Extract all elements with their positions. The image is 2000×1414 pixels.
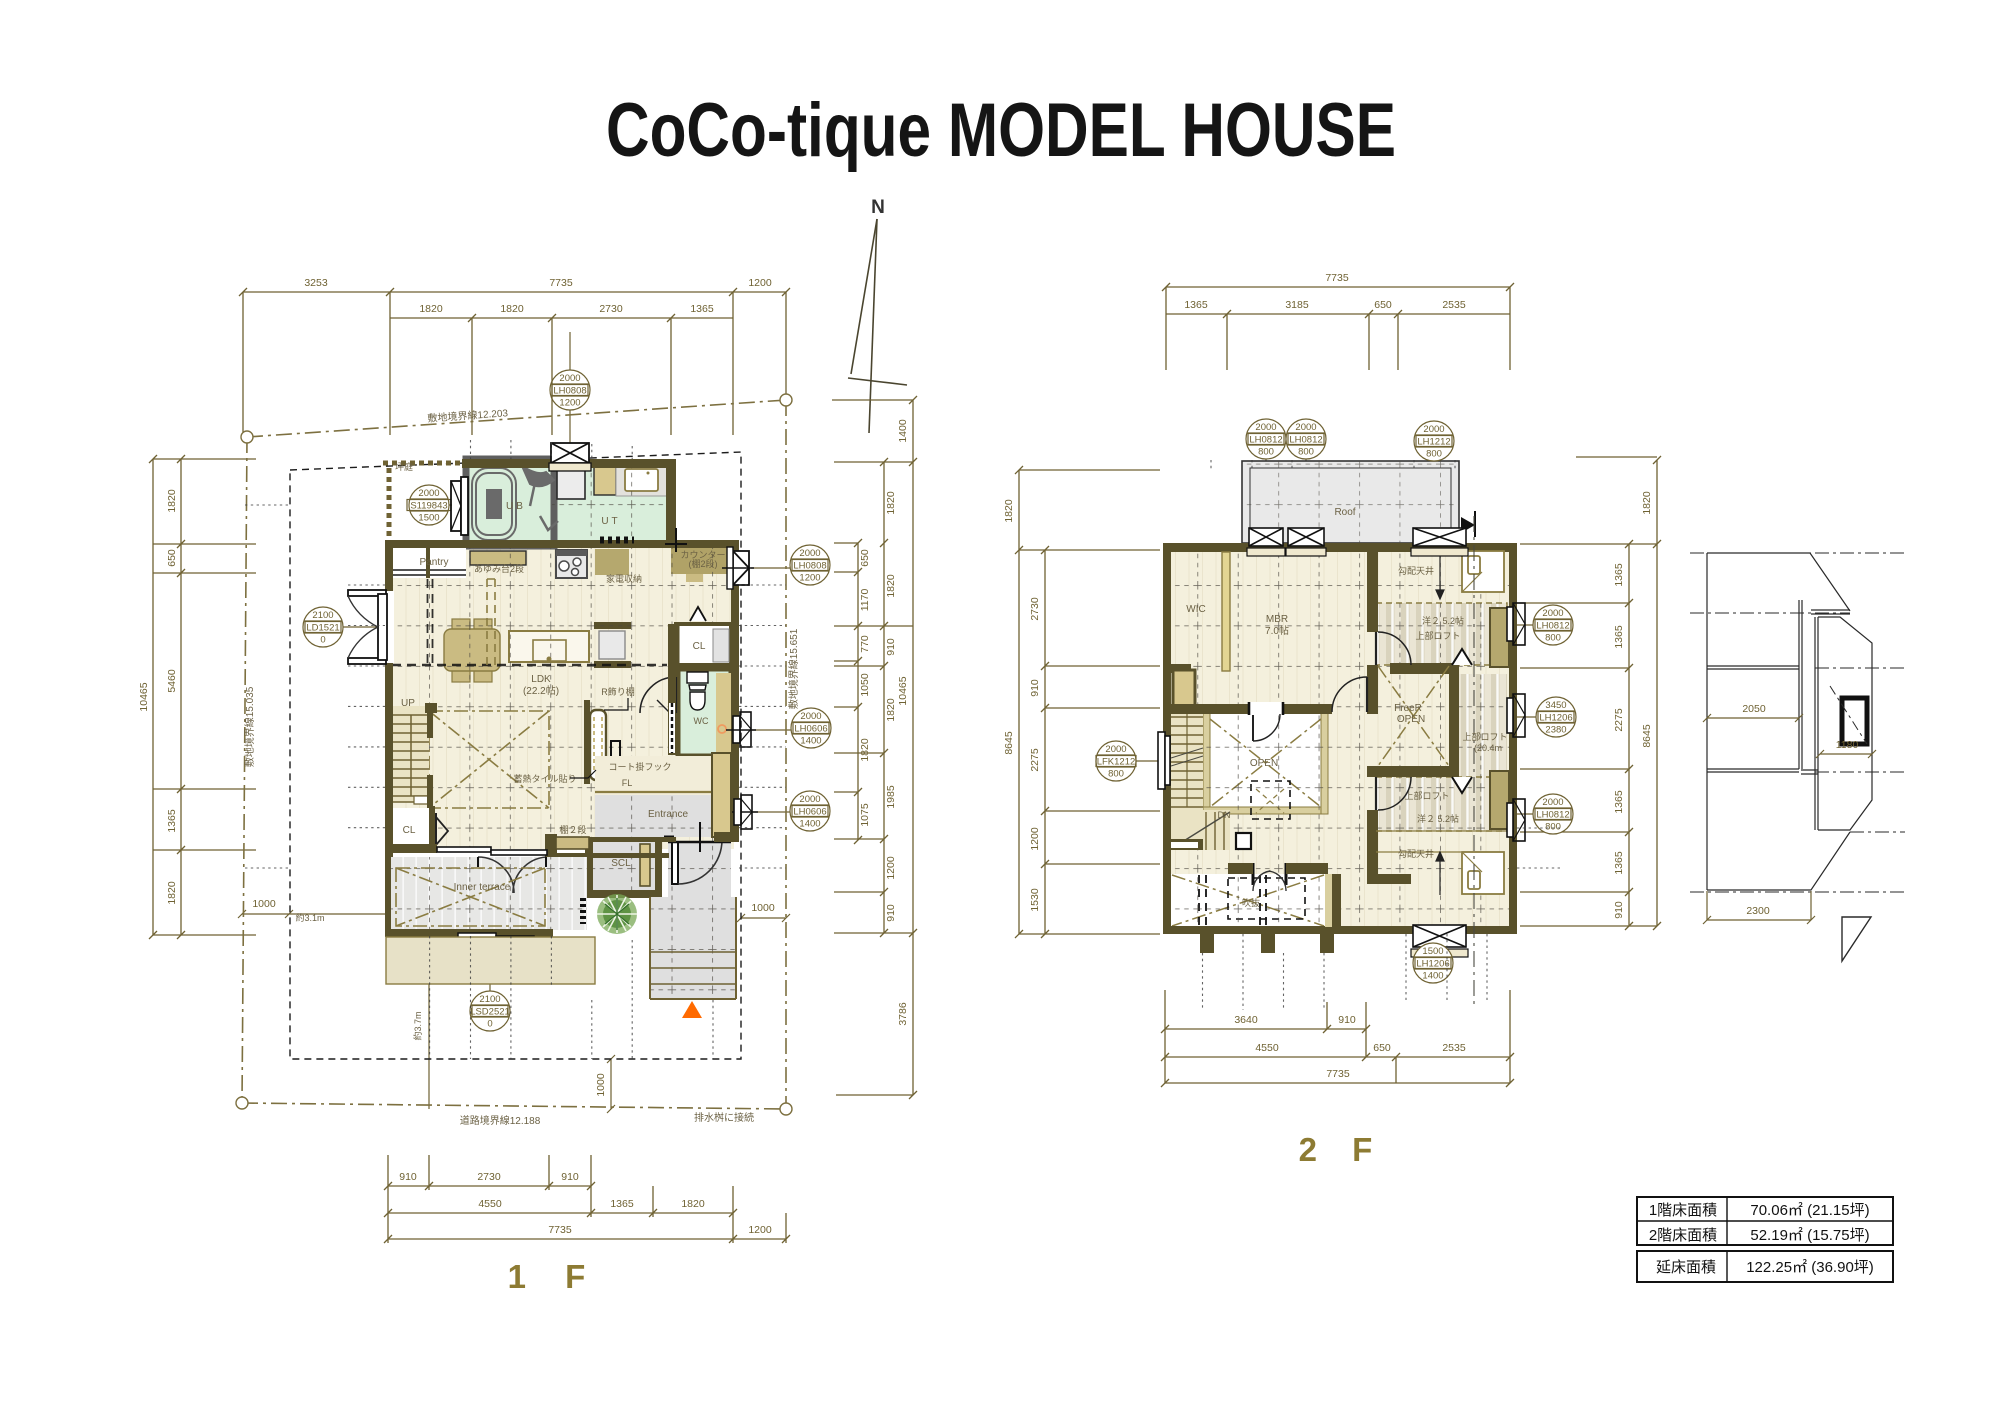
svg-text:LH0808: LH0808 [553, 386, 586, 397]
svg-text:1200: 1200 [799, 573, 820, 584]
svg-text:UT: UT [601, 516, 620, 527]
svg-text:延床面積: 延床面積 [1656, 1259, 1716, 1276]
svg-text:0: 0 [487, 1019, 492, 1030]
svg-text:2100: 2100 [312, 610, 333, 621]
svg-text:650: 650 [1374, 299, 1392, 311]
svg-text:2000: 2000 [1295, 422, 1316, 433]
svg-text:OPEN: OPEN [1397, 714, 1425, 725]
svg-text:MBR: MBR [1266, 614, 1288, 625]
svg-text:LH1212: LH1212 [1417, 437, 1450, 448]
svg-text:3253: 3253 [304, 277, 328, 289]
svg-text:1365: 1365 [166, 809, 178, 833]
svg-text:7735: 7735 [1326, 1068, 1350, 1080]
svg-text:約3.7m: 約3.7m [412, 1011, 423, 1040]
svg-text:LH0812: LH0812 [1249, 435, 1282, 446]
svg-text:勾配天井: 勾配天井 [1398, 565, 1434, 576]
svg-text:Pantry: Pantry [420, 557, 449, 568]
svg-text:2730: 2730 [1029, 597, 1041, 621]
svg-text:1820: 1820 [166, 881, 178, 905]
svg-text:1050: 1050 [859, 673, 871, 697]
svg-text:8645: 8645 [1641, 724, 1653, 748]
svg-text:1500: 1500 [1422, 946, 1443, 957]
svg-text:1 F: 1 F [508, 1258, 601, 1295]
svg-text:1365: 1365 [1613, 790, 1625, 814]
svg-text:2000: 2000 [418, 488, 439, 499]
svg-text:800: 800 [1298, 447, 1314, 458]
svg-text:2000: 2000 [1542, 608, 1563, 619]
svg-text:2535: 2535 [1442, 299, 1466, 311]
svg-text:1400: 1400 [800, 736, 821, 747]
svg-text:2000: 2000 [799, 548, 820, 559]
svg-text:洋２ 5.2帖: 洋２ 5.2帖 [1422, 615, 1464, 626]
svg-text:CoCo-tique MODEL HOUSE: CoCo-tique MODEL HOUSE [606, 88, 1396, 173]
svg-text:910: 910 [1029, 679, 1041, 697]
svg-text:LH1206: LH1206 [1539, 713, 1572, 724]
svg-text:1820: 1820 [1003, 499, 1015, 523]
svg-text:洋２ 5.2帖: 洋２ 5.2帖 [1417, 813, 1459, 824]
svg-text:LFK1212: LFK1212 [1097, 757, 1136, 768]
svg-text:坪庭: 坪庭 [395, 461, 413, 472]
svg-text:S119843: S119843 [410, 501, 447, 512]
svg-text:CL: CL [693, 641, 706, 652]
svg-text:蓄熱タイル貼り: 蓄熱タイル貼り [513, 773, 576, 784]
svg-text:敷地境界線15.035: 敷地境界線15.035 [243, 686, 256, 767]
svg-text:2000: 2000 [1105, 744, 1126, 755]
svg-text:LD1521: LD1521 [306, 623, 339, 634]
svg-text:1820: 1820 [1641, 491, 1653, 515]
svg-text:LH0808: LH0808 [793, 561, 826, 572]
svg-text:(22.2帖): (22.2帖) [523, 684, 559, 697]
svg-text:2380: 2380 [1545, 725, 1566, 736]
svg-text:800: 800 [1258, 447, 1274, 458]
svg-text:1400: 1400 [799, 819, 820, 830]
svg-text:1820: 1820 [859, 738, 871, 762]
svg-text:910: 910 [885, 638, 897, 656]
svg-text:2000: 2000 [799, 794, 820, 805]
svg-text:1200: 1200 [748, 1224, 772, 1236]
svg-text:2100: 2100 [479, 994, 500, 1005]
svg-text:800: 800 [1108, 769, 1124, 780]
svg-text:UP: UP [401, 698, 415, 709]
svg-text:1820: 1820 [885, 698, 897, 722]
svg-text:650: 650 [166, 549, 178, 567]
svg-text:910: 910 [1338, 1014, 1356, 1026]
svg-text:Roof: Roof [1334, 507, 1355, 518]
svg-text:2000: 2000 [1542, 797, 1563, 808]
svg-text:2300: 2300 [1746, 905, 1770, 917]
svg-text:1820: 1820 [885, 574, 897, 598]
svg-text:1365: 1365 [690, 303, 714, 315]
svg-text:2000: 2000 [1423, 424, 1444, 435]
svg-text:LH0812: LH0812 [1536, 621, 1569, 632]
svg-text:LSD2521: LSD2521 [470, 1007, 510, 1018]
svg-text:LH0606: LH0606 [793, 807, 826, 818]
svg-text:1820: 1820 [500, 303, 524, 315]
svg-text:10465: 10465 [897, 676, 909, 705]
svg-text:R飾り棚: R飾り棚 [601, 686, 635, 697]
svg-text:2730: 2730 [599, 303, 623, 315]
svg-text:800: 800 [1426, 449, 1442, 460]
svg-text:(棚2段): (棚2段) [689, 558, 718, 569]
svg-text:650: 650 [859, 549, 871, 567]
svg-text:LH0812: LH0812 [1289, 435, 1322, 446]
svg-text:0: 0 [320, 635, 325, 646]
svg-text:1200: 1200 [748, 277, 772, 289]
svg-text:1400: 1400 [1422, 971, 1443, 982]
svg-text:1365: 1365 [1613, 563, 1625, 587]
svg-text:FreeR: FreeR [1394, 703, 1422, 714]
svg-text:UB: UB [506, 501, 526, 512]
svg-text:1200: 1200 [885, 856, 897, 880]
svg-text:上部ロフト: 上部ロフト [1462, 731, 1507, 742]
svg-text:1365: 1365 [1613, 851, 1625, 875]
svg-text:1365: 1365 [610, 1198, 634, 1210]
svg-text:1820: 1820 [681, 1198, 705, 1210]
svg-text:CL: CL [403, 825, 416, 836]
svg-text:Entrance: Entrance [648, 809, 688, 820]
svg-text:DN: DN [1218, 810, 1231, 820]
svg-text:3185: 3185 [1285, 299, 1309, 311]
svg-text:WIC: WIC [1186, 604, 1205, 615]
svg-text:3640: 3640 [1234, 1014, 1258, 1026]
svg-text:2730: 2730 [477, 1171, 501, 1183]
svg-text:1820: 1820 [885, 491, 897, 515]
svg-text:7735: 7735 [1325, 272, 1349, 284]
svg-text:1820: 1820 [166, 489, 178, 513]
svg-text:SCL: SCL [611, 858, 631, 869]
svg-text:LH0812: LH0812 [1536, 810, 1569, 821]
svg-text:排水桝に接続: 排水桝に接続 [694, 1111, 754, 1124]
svg-text:910: 910 [1613, 901, 1625, 919]
svg-text:2000: 2000 [1255, 422, 1276, 433]
svg-text:800: 800 [1545, 822, 1561, 833]
svg-text:家電収納: 家電収納 [606, 573, 642, 584]
svg-text:あゆみ台2段: あゆみ台2段 [474, 563, 524, 574]
svg-text:7735: 7735 [548, 1224, 572, 1236]
svg-text:122.25㎡ (36.90坪): 122.25㎡ (36.90坪) [1746, 1259, 1874, 1276]
svg-text:7.0帖: 7.0帖 [1265, 624, 1289, 637]
svg-text:800: 800 [1545, 633, 1561, 644]
svg-text:1365: 1365 [1184, 299, 1208, 311]
svg-text:650: 650 [1373, 1042, 1391, 1054]
svg-text:LDK: LDK [531, 674, 551, 685]
svg-text:N: N [871, 197, 885, 218]
svg-text:910: 910 [885, 904, 897, 922]
svg-text:7735: 7735 [549, 277, 573, 289]
svg-text:1階床面積: 1階床面積 [1649, 1202, 1717, 1219]
svg-text:約3.1m: 約3.1m [295, 912, 324, 923]
svg-text:4550: 4550 [478, 1198, 502, 1210]
svg-text:3450: 3450 [1545, 700, 1566, 711]
svg-text:2535: 2535 [1442, 1042, 1466, 1054]
svg-text:1365: 1365 [1613, 625, 1625, 649]
svg-text:4550: 4550 [1255, 1042, 1279, 1054]
svg-text:2050: 2050 [1742, 703, 1766, 715]
svg-text:FL: FL [622, 778, 633, 788]
svg-text:910: 910 [561, 1171, 579, 1183]
svg-text:2275: 2275 [1029, 748, 1041, 772]
svg-text:敷地境界線15.651: 敷地境界線15.651 [787, 628, 800, 709]
svg-text:3786: 3786 [897, 1002, 909, 1026]
svg-text:1170: 1170 [859, 589, 871, 612]
svg-text:1000: 1000 [595, 1073, 607, 1097]
svg-text:WC: WC [694, 716, 709, 726]
svg-text:1000: 1000 [751, 902, 775, 914]
svg-text:上部ロフト: 上部ロフト [1404, 790, 1449, 801]
svg-text:2000: 2000 [800, 711, 821, 722]
svg-text:5460: 5460 [166, 669, 178, 693]
svg-text:1000: 1000 [252, 898, 276, 910]
svg-text:2 F: 2 F [1299, 1131, 1386, 1168]
svg-text:LH1206: LH1206 [1416, 959, 1449, 970]
svg-text:2000: 2000 [559, 373, 580, 384]
svg-text:上部ロフト: 上部ロフト [1415, 630, 1460, 641]
svg-text:道路境界線12.188: 道路境界線12.188 [460, 1114, 541, 1127]
svg-text:棚２段: 棚２段 [559, 824, 586, 835]
svg-text:770: 770 [859, 635, 871, 653]
svg-text:1820: 1820 [419, 303, 443, 315]
svg-text:Inner terrace: Inner terrace [454, 882, 511, 893]
svg-text:1500: 1500 [418, 513, 439, 524]
svg-text:910: 910 [399, 1171, 417, 1183]
svg-text:1530: 1530 [1029, 888, 1041, 912]
svg-text:1200: 1200 [559, 398, 580, 409]
svg-text:1400: 1400 [897, 419, 909, 443]
svg-text:10465: 10465 [138, 682, 150, 711]
svg-text:52.19㎡ (15.75坪): 52.19㎡ (15.75坪) [1750, 1227, 1869, 1244]
svg-text:2275: 2275 [1613, 708, 1625, 732]
svg-text:1200: 1200 [1029, 827, 1041, 851]
svg-text:(20.4m: (20.4m [1474, 743, 1502, 753]
svg-text:勾配天井: 勾配天井 [1398, 848, 1434, 859]
svg-text:1075: 1075 [859, 803, 871, 827]
svg-text:1985: 1985 [885, 785, 897, 809]
svg-text:コート掛フック: コート掛フック [608, 761, 671, 772]
svg-text:2階床面積: 2階床面積 [1649, 1227, 1717, 1244]
svg-text:8645: 8645 [1003, 731, 1015, 755]
svg-text:70.06㎡ (21.15坪): 70.06㎡ (21.15坪) [1750, 1202, 1869, 1219]
svg-text:1180: 1180 [1836, 739, 1859, 751]
svg-text:LH0606: LH0606 [794, 724, 827, 735]
